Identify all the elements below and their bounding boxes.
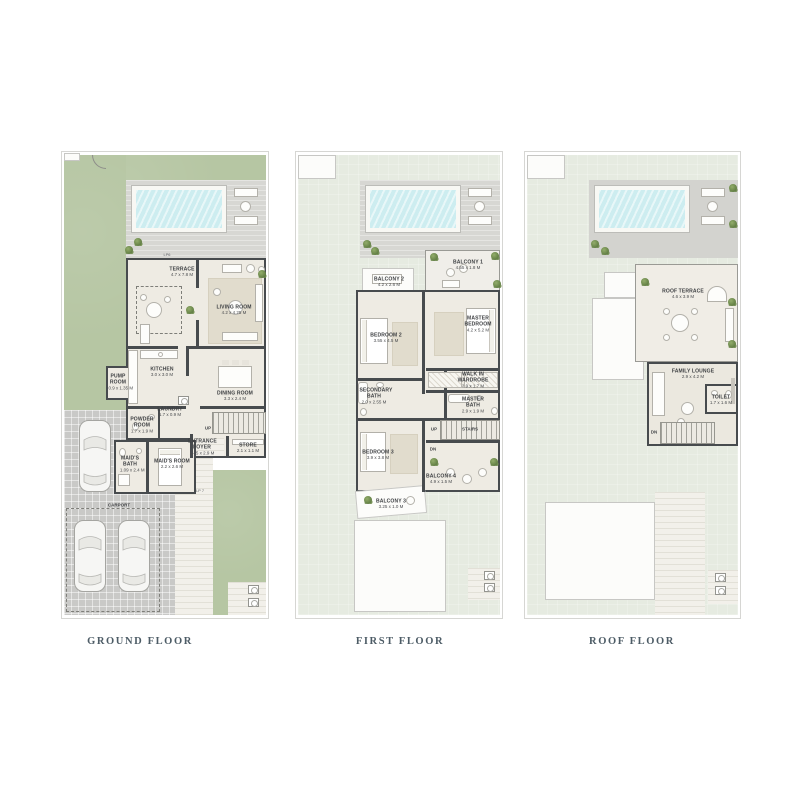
utility-pad <box>228 582 266 615</box>
room-label-living: LIVING ROOM4.2 x 4.25 M <box>216 304 251 316</box>
plant-icon <box>371 247 379 255</box>
roof-notch <box>298 155 336 179</box>
title-roof-floor: ROOF FLOOR <box>537 636 727 647</box>
room-label-maids-room: MAID'S ROOM2.2 x 2.6 M <box>154 458 190 470</box>
room-label-balcony3: BALCONY 33.25 x 1.0 M <box>376 498 406 510</box>
table-icon <box>146 302 162 318</box>
plant-icon <box>601 247 609 255</box>
lounge-chair-icon <box>442 280 460 288</box>
wall-segment <box>426 440 500 443</box>
room-dims: 1.7 x 0.9 M <box>157 412 182 418</box>
room-dims: 0.9 x 1.35 M <box>108 386 127 392</box>
up-label: UP <box>205 425 211 430</box>
room-label-powder: POWDER ROOM1.7 x 1.9 M <box>130 416 154 434</box>
room-label-secondary-bath: SECONDARY BATH2.0 x 2.55 M <box>359 387 388 405</box>
plant-icon <box>728 298 736 306</box>
wall-segment <box>196 320 199 348</box>
floor-plan-first: BALCONY 14.55 x 1.8 M BALCONY 24.2 x 2.6… <box>296 152 502 618</box>
room-dims: 4.55 x 1.8 M <box>453 265 483 271</box>
car-icon <box>116 518 152 594</box>
wall-segment <box>356 378 424 381</box>
room-dims: 2.9 x 1.9 M <box>462 409 484 415</box>
title-first-floor: FIRST FLOOR <box>305 636 495 647</box>
plant-icon <box>134 238 142 246</box>
table-icon <box>671 314 689 332</box>
floor-plan-ground: TERRACE4.7 x 7.8 M LIVING ROOM4.2 x 4.25… <box>62 152 268 618</box>
chair-icon <box>213 288 221 296</box>
room-dims: 4.2 x 2.6 M <box>374 282 404 288</box>
table-icon <box>240 201 251 212</box>
chair-icon <box>691 334 698 341</box>
chair-icon <box>478 468 487 477</box>
lower-roof <box>545 502 655 600</box>
plant-icon <box>729 184 737 192</box>
wall-segment <box>200 406 266 409</box>
plant-icon <box>125 246 133 254</box>
room-name: ENTRANCE FOYER <box>188 438 216 451</box>
room-dims: 3.25 x 1.0 M <box>376 504 406 510</box>
wall-segment <box>126 438 192 441</box>
up-label: UP <box>431 426 437 431</box>
room-dims: 4.2 x 5.2 M <box>463 328 492 334</box>
room-label-master-bath: MASTER BATH2.9 x 1.9 M <box>462 396 484 414</box>
room-name: WALK IN WARDROBE <box>457 371 488 384</box>
room-dims: 4.7 x 7.8 M <box>169 272 194 278</box>
kitchen-counter <box>128 350 138 404</box>
plant-icon <box>490 458 498 466</box>
lounger-icon <box>234 216 258 225</box>
room-label-family-lounge: FAMILY LOUNGE2.9 x 4.2 M <box>672 368 714 380</box>
sink-icon <box>136 448 142 454</box>
table-icon <box>707 201 718 212</box>
car-icon <box>72 518 108 594</box>
room-name: POWDER ROOM <box>130 416 154 429</box>
room-name: PUMP ROOM <box>108 373 127 386</box>
ac-unit-icon <box>484 583 495 592</box>
ac-unit-icon <box>248 585 259 594</box>
room-label-balcony4: BALCONY 44.9 x 1.5 M <box>426 473 456 485</box>
room-dims: 1.45 x 2.9 M <box>188 451 216 457</box>
plant-icon <box>491 252 499 260</box>
table-icon <box>474 201 485 212</box>
sofa-icon <box>652 372 665 416</box>
room-label-balcony1: BALCONY 14.55 x 1.8 M <box>453 259 483 271</box>
bedroom3-rug <box>390 434 418 474</box>
room-label-toilet: TOILET1.7 x 1.6 M <box>710 394 732 406</box>
room-dims: 3.3 x 2.4 M <box>217 396 253 402</box>
gate-icon <box>64 153 80 161</box>
room-label-laundry: LAUNDRY1.7 x 0.9 M <box>157 406 182 418</box>
room-dims: 3.9 x 3.8 M <box>362 455 394 461</box>
room-name: MAID'S BATH <box>120 455 140 468</box>
stairs-label: STAIRS <box>462 426 478 431</box>
room-name: MASTER BEDROOM <box>463 315 492 328</box>
dining-table-icon <box>218 366 252 388</box>
lounger-icon <box>234 188 258 197</box>
room-label-roof-terrace: ROOF TERRACE4.6 x 3.9 M <box>662 288 704 300</box>
chair-icon <box>663 308 670 315</box>
plant-icon <box>641 278 649 286</box>
chair-icon <box>246 264 255 273</box>
ac-unit-icon <box>484 571 495 580</box>
swimming-pool <box>132 186 226 232</box>
table-icon <box>462 474 472 484</box>
room-label-foyer: ENTRANCE FOYER1.45 x 2.9 M <box>188 438 216 456</box>
floorplan-sheet: { "document": {"background": "#ffffff"},… <box>0 0 800 800</box>
shower-icon <box>118 474 130 486</box>
stairs <box>660 422 715 444</box>
room-dims: 2.9 x 4.2 M <box>672 374 714 380</box>
wall-segment <box>196 258 199 288</box>
room-dims: 3.0 x 3.0 M <box>150 372 173 378</box>
carport-label: CARPORT <box>108 502 130 507</box>
roof-notch <box>527 155 565 179</box>
room-dims: 2.9 x 1.7 M <box>457 384 488 390</box>
room-label-bedroom2: BEDROOM 23.55 x 4.5 M <box>370 332 402 344</box>
room-label-kitchen: KITCHEN3.0 x 3.0 M <box>150 366 173 378</box>
room-dims: 4.2 x 4.25 M <box>216 310 251 316</box>
plant-icon <box>430 253 438 261</box>
dn-label: DN <box>430 446 436 451</box>
ac-unit-icon <box>715 586 726 595</box>
car-icon <box>77 418 113 494</box>
dining-chairs-icon <box>222 360 229 365</box>
room-label-balcony2: BALCONY 24.2 x 2.6 M <box>374 276 404 288</box>
lower-roof <box>354 520 446 612</box>
room-dims: 1.7 x 1.9 M <box>130 429 154 435</box>
plant-icon <box>493 280 501 288</box>
chair-icon <box>164 296 171 303</box>
room-label-store: STORE2.1 x 1.1 M <box>237 442 259 454</box>
room-label-wardrobe: WALK IN WARDROBE2.9 x 1.7 M <box>457 371 488 389</box>
room-dims: 4.9 x 1.5 M <box>426 479 456 485</box>
sofa-icon <box>222 332 258 341</box>
pillow-icon <box>160 450 180 455</box>
room-label-terrace: TERRACE4.7 x 7.8 M <box>169 266 194 278</box>
room-dims: 2.0 x 2.55 M <box>359 400 388 406</box>
toilet-icon <box>491 407 498 415</box>
room-label-bedroom3: BEDROOM 33.9 x 3.8 M <box>362 449 394 461</box>
sofa-icon <box>725 308 734 342</box>
walkway <box>655 492 705 615</box>
swimming-pool <box>595 186 689 232</box>
stairs <box>212 412 266 434</box>
lounger-icon <box>468 188 492 197</box>
plant-icon <box>258 270 266 278</box>
lp6-label: LP6 <box>164 253 171 257</box>
toilet-icon <box>360 408 367 416</box>
chair-icon <box>140 294 147 301</box>
sink-icon <box>158 352 163 357</box>
room-dims: 4.6 x 3.9 M <box>662 294 704 300</box>
wall-segment <box>226 436 229 458</box>
room-dims: 1.09 x 2.4 M <box>120 468 140 474</box>
plant-icon <box>430 458 438 466</box>
coffee-table-icon <box>681 402 694 415</box>
plant-icon <box>186 306 194 314</box>
lounge-chair-icon <box>140 324 150 344</box>
room-label-master: MASTER BEDROOM4.2 x 5.2 M <box>463 315 492 333</box>
wall-segment <box>186 348 189 376</box>
chair-icon <box>663 334 670 341</box>
pillow-icon <box>362 320 367 362</box>
bedroom2-rug <box>392 322 418 366</box>
lounger-icon <box>701 216 725 225</box>
roof-terrace-floor <box>635 264 738 362</box>
lp7-label: LP 7 <box>196 489 204 493</box>
room-dims: 2.2 x 2.6 M <box>154 464 190 470</box>
master-rug <box>434 312 464 356</box>
ac-unit-icon <box>248 598 259 607</box>
ac-unit-icon <box>715 573 726 582</box>
chair-icon <box>406 496 415 505</box>
room-name: SECONDARY BATH <box>359 387 388 400</box>
room-dims: 1.7 x 1.6 M <box>710 400 732 406</box>
outdoor-sofa-icon <box>222 264 242 273</box>
room-label-dining: DINING ROOM3.3 x 2.4 M <box>217 390 253 402</box>
room-label-maids-bath: MAID'S BATH1.09 x 2.4 M <box>120 455 140 473</box>
title-ground-floor: GROUND FLOOR <box>45 636 235 647</box>
lounger-icon <box>701 188 725 197</box>
floor-plan-roof: ROOF TERRACE4.6 x 3.9 M FAMILY LOUNGE2.9… <box>525 152 740 618</box>
swimming-pool <box>366 186 460 232</box>
arch-feature <box>707 286 727 302</box>
wall-segment <box>126 346 178 349</box>
plant-icon <box>363 240 371 248</box>
room-name: MASTER BATH <box>462 396 484 409</box>
room-label-pump: PUMP ROOM0.9 x 1.35 M <box>108 373 127 391</box>
wall-segment <box>186 346 266 349</box>
plant-icon <box>729 220 737 228</box>
wall-segment <box>146 442 149 492</box>
plant-icon <box>728 340 736 348</box>
sofa-icon <box>255 284 263 322</box>
dn-label: DN <box>651 429 657 434</box>
plant-icon <box>591 240 599 248</box>
chair-icon <box>691 308 698 315</box>
wall-segment <box>422 420 425 492</box>
wall-segment <box>426 390 500 393</box>
room-dims: 3.55 x 4.5 M <box>370 338 402 344</box>
room-dims: 2.1 x 1.1 M <box>237 448 259 454</box>
plant-icon <box>364 496 372 504</box>
washing-machine-icon <box>178 396 189 405</box>
lounger-icon <box>468 216 492 225</box>
